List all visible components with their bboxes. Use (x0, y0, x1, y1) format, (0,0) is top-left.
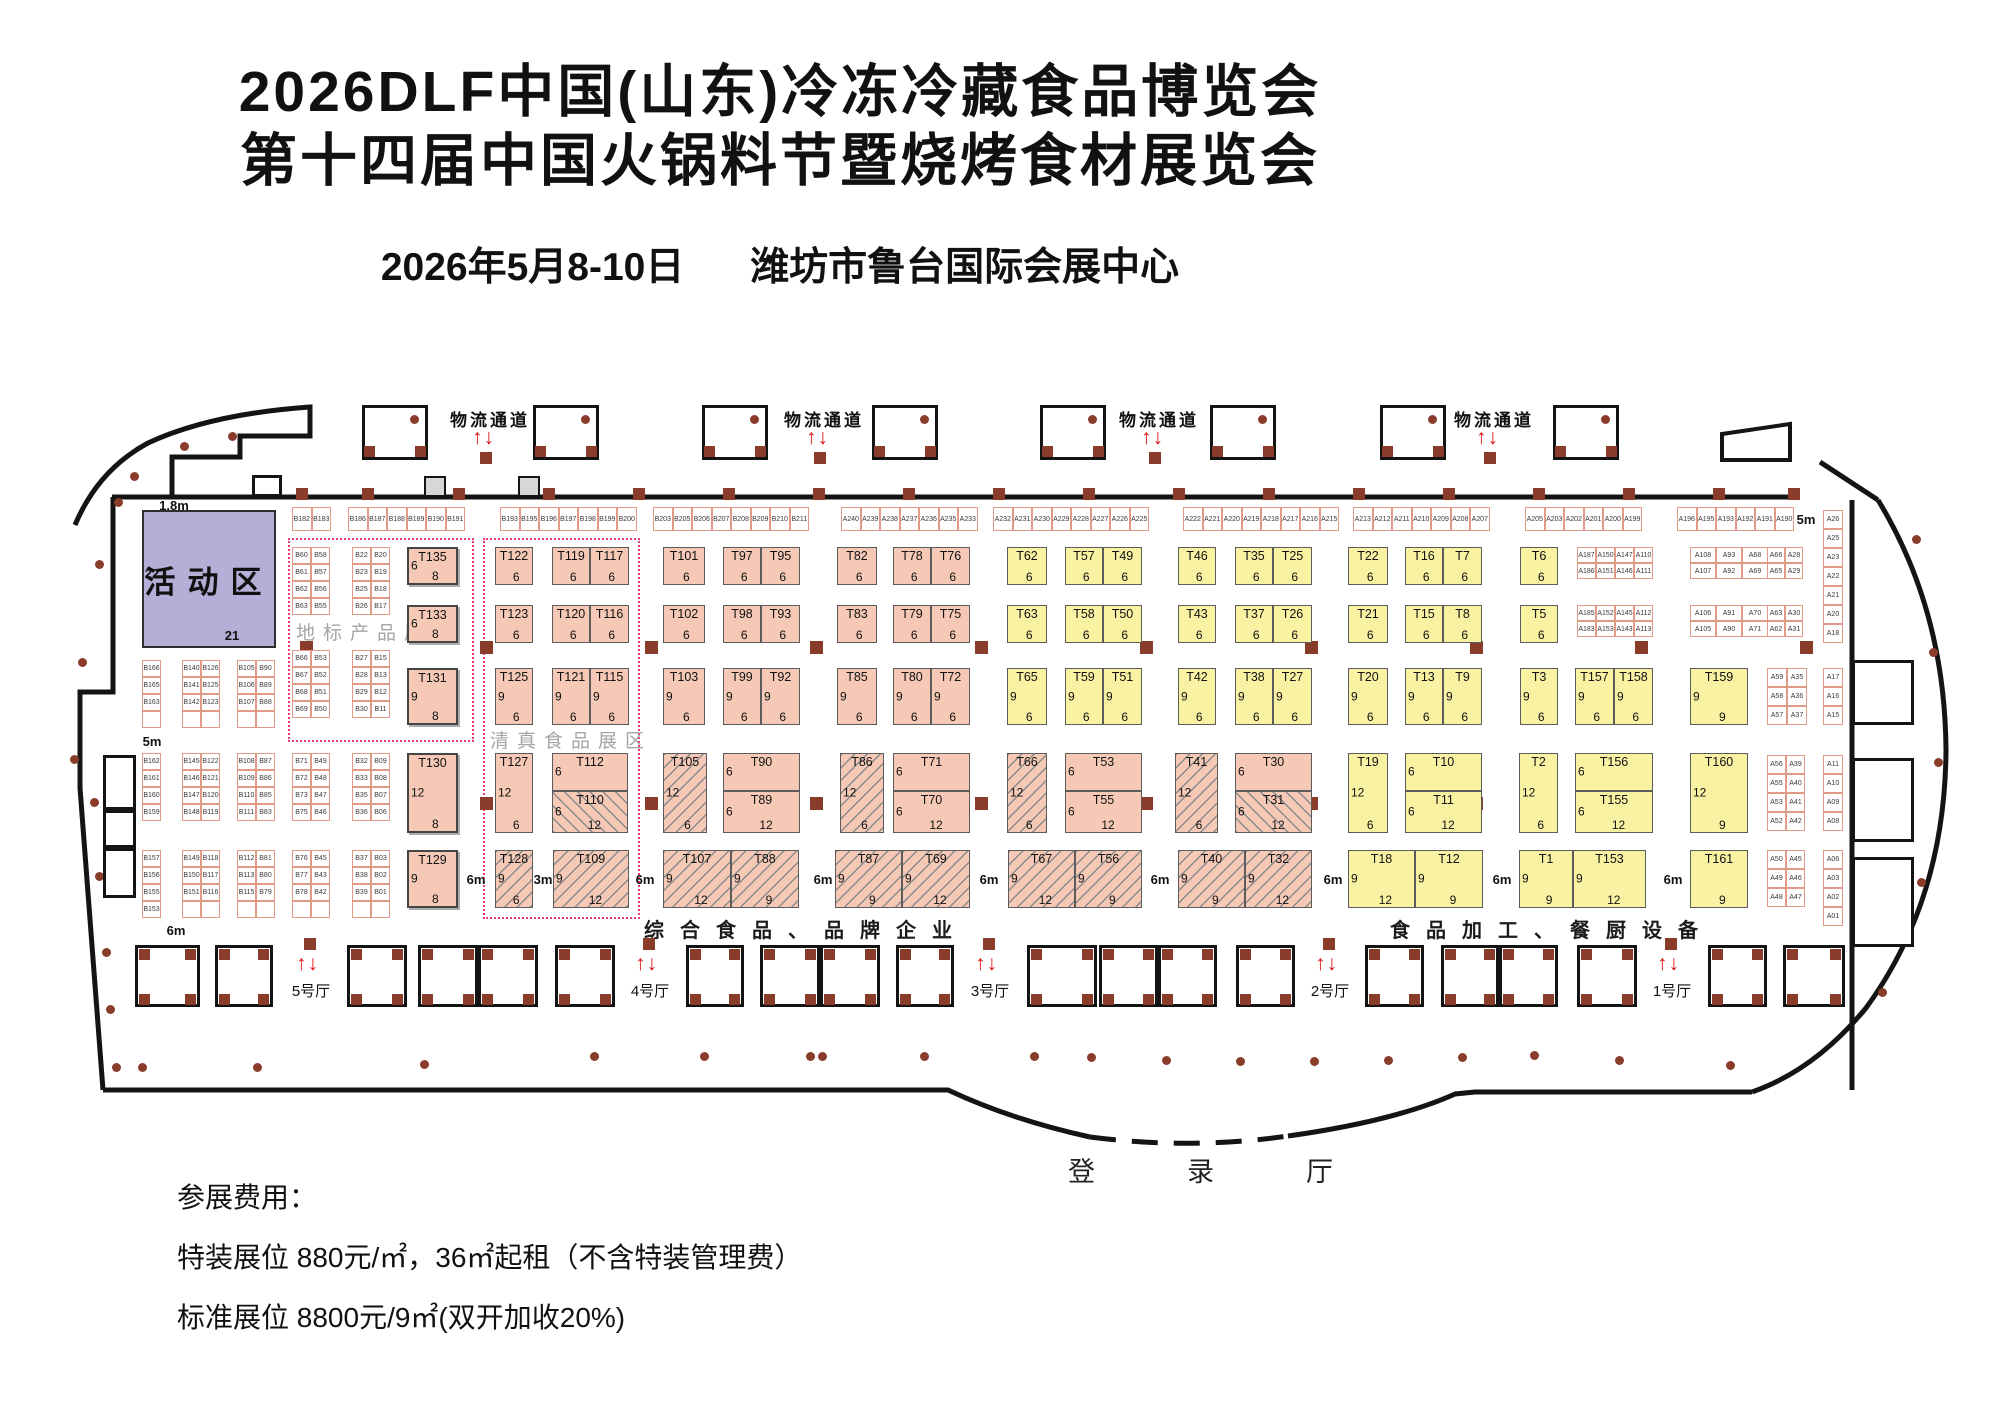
booth-bottom-size: 12 (694, 893, 707, 907)
column-marker (645, 797, 658, 810)
column-marker (1280, 949, 1291, 960)
booth-bottom-size: 9 (1212, 893, 1219, 907)
booth-side-size: 6 (555, 765, 562, 779)
booth-B110: B110 (237, 787, 256, 804)
column-dot (138, 1063, 147, 1072)
side-room (1852, 660, 1914, 725)
booth-A185: A185 (1577, 605, 1596, 621)
booth-B160: B160 (142, 787, 161, 804)
strip-booth-A26: A26 (1823, 510, 1843, 529)
booth-id: T76 (932, 549, 969, 563)
booth-A183: A183 (1577, 621, 1596, 637)
booth-T57: T576 (1065, 547, 1103, 585)
column-marker (1533, 488, 1545, 500)
column-marker (755, 446, 766, 457)
column-marker (1263, 488, 1275, 500)
column-dot (1726, 1061, 1735, 1070)
booth-B107: B107 (237, 694, 256, 711)
column-marker (1503, 994, 1514, 1005)
dimension-label: 6m (1493, 872, 1512, 887)
strip-booth-B211: B211 (790, 507, 810, 531)
booth-B15: B15 (371, 650, 390, 667)
column-dot (1912, 535, 1921, 544)
booth-B117: B117 (201, 867, 220, 884)
booth-T30: T306 (1235, 753, 1312, 791)
strip-booth-A213: A213 (1353, 507, 1373, 531)
booth-T46: T466 (1178, 547, 1216, 585)
booth-B118: B118 (201, 850, 220, 867)
column-marker (219, 949, 230, 960)
booth-A92: A92 (1716, 563, 1742, 579)
strip-booth-A192: A192 (1736, 507, 1756, 531)
booth-id: T11 (1406, 793, 1481, 807)
strip-booth-A225: A225 (1130, 507, 1150, 531)
booth-B19: B19 (371, 564, 390, 581)
booth-empty (182, 901, 201, 918)
column-marker (729, 949, 740, 960)
column-marker (805, 994, 816, 1005)
booth-B157: B157 (142, 850, 161, 867)
strip-booth-A207: A207 (1470, 507, 1490, 531)
booth-B116: B116 (201, 884, 220, 901)
booth-bottom-size: 8 (432, 709, 439, 723)
column-marker (1665, 938, 1677, 950)
booth-id: T30 (1236, 755, 1311, 769)
booth-B13: B13 (371, 667, 390, 684)
booth-id: T79 (894, 607, 930, 621)
column-marker (1143, 949, 1154, 960)
booth-T1: T199 (1519, 850, 1573, 908)
booth-side-size: 6 (1238, 765, 1245, 779)
booth-side-size: 9 (1351, 872, 1358, 886)
booth-side-size: 9 (1181, 689, 1188, 703)
strip-booth-B207: B207 (712, 507, 732, 531)
strip-booth-A203: A203 (1545, 507, 1565, 531)
strip-booth-B198: B198 (578, 507, 598, 531)
strip-booth-A08: A08 (1823, 812, 1843, 831)
booth-bottom-size: 6 (949, 710, 956, 724)
column-marker (1623, 488, 1635, 500)
booth-side-size: 9 (840, 689, 847, 703)
strip-booth-A228: A228 (1071, 507, 1091, 531)
booth-A150: A150 (1596, 547, 1615, 563)
booth-T55: T55612 (1065, 791, 1142, 833)
column-dot (410, 415, 419, 424)
column-marker (258, 949, 269, 960)
booth-T157: T15796 (1575, 668, 1614, 725)
column-dot (1929, 648, 1938, 657)
booth-id: T26 (1274, 607, 1311, 621)
dimension-label: 6m (1151, 872, 1170, 887)
column-marker (1103, 949, 1114, 960)
column-dot (750, 415, 759, 424)
booth-T13: T1396 (1405, 668, 1443, 725)
booth-id: T56 (1076, 852, 1141, 866)
booth-A62: A62 (1767, 621, 1785, 637)
booth-T53: T536 (1065, 753, 1142, 791)
column-marker (1263, 446, 1274, 457)
booth-side-size: 6 (1068, 805, 1075, 819)
booth-id: T123 (496, 607, 532, 621)
booth-B156: B156 (142, 867, 161, 884)
column-dot (180, 442, 189, 451)
booth-bottom-size: 6 (856, 628, 863, 642)
booth-empty (142, 711, 161, 728)
booth-T41: T41126 (1175, 753, 1218, 833)
booth-B51: B51 (311, 684, 330, 701)
booth-bottom-size: 6 (1121, 710, 1128, 724)
column-marker (1606, 446, 1617, 457)
booth-T12: T1299 (1415, 850, 1483, 908)
comprehensive-zone-label: 综合食品、品牌企业 (644, 914, 968, 943)
booth-id: T21 (1349, 607, 1387, 621)
booth-side-size: 9 (593, 689, 600, 703)
booth-B35: B35 (352, 787, 371, 804)
dimension-label: 5m (143, 734, 162, 749)
column-marker (480, 452, 492, 464)
strip-booth-A23: A23 (1823, 548, 1843, 567)
booth-id: T13 (1406, 670, 1442, 684)
booth-empty (237, 901, 256, 918)
booth-bottom-size: 6 (683, 628, 690, 642)
booth-B151: B151 (182, 884, 201, 901)
booth-id: T66 (1008, 755, 1046, 769)
side-room (1852, 857, 1914, 947)
hall-arrows: ↑↓ (635, 952, 658, 976)
booth-T43: T436 (1178, 605, 1216, 643)
booth-id: T1 (1520, 852, 1572, 866)
booth-bottom-size: 12 (1276, 893, 1289, 907)
column-marker (925, 446, 936, 457)
booth-bottom-size: 6 (1632, 710, 1639, 724)
strip-booth-B210: B210 (770, 507, 790, 531)
booth-B159: B159 (142, 804, 161, 821)
column-dot (78, 658, 87, 667)
strip-booth-B190: B190 (426, 507, 446, 531)
column-dot (70, 755, 79, 764)
booth-A143: A143 (1615, 621, 1634, 637)
booth-B150: B150 (182, 867, 201, 884)
column-marker (415, 446, 426, 457)
strip-booth-B209: B209 (751, 507, 771, 531)
booth-T79: T796 (893, 605, 931, 643)
column-dot (1162, 1056, 1171, 1065)
column-marker (1031, 994, 1042, 1005)
column-marker (463, 994, 474, 1005)
booth-bottom-size: 6 (1423, 570, 1430, 584)
booth-id: T158 (1615, 670, 1652, 684)
booth-bottom-size: 12 (933, 893, 946, 907)
booth-T103: T10396 (663, 668, 705, 725)
booth-B37: B37 (352, 850, 371, 867)
strip-booth-A11: A11 (1823, 755, 1843, 774)
booth-B03: B03 (371, 850, 390, 867)
booth-T80: T8096 (893, 668, 931, 725)
booth-bottom-size: 8 (432, 892, 439, 906)
booth-A107: A107 (1690, 563, 1716, 579)
column-marker (975, 797, 988, 810)
strip-booth-A212: A212 (1373, 507, 1393, 531)
booth-T87: T8799 (835, 850, 902, 908)
booth-id: T99 (724, 670, 760, 684)
column-marker (1082, 949, 1093, 960)
booth-id: T153 (1574, 852, 1645, 866)
column-marker (1484, 452, 1496, 464)
column-marker (1555, 446, 1566, 457)
strip-booth-A236: A236 (919, 507, 939, 531)
booth-A47: A47 (1786, 888, 1805, 907)
booth-id: T62 (1008, 549, 1046, 563)
booth-bottom-size: 6 (1367, 818, 1374, 832)
booth-A31: A31 (1785, 621, 1803, 637)
strip-booth-A220: A220 (1222, 507, 1242, 531)
booth-bottom-size: 6 (1538, 628, 1545, 642)
booth-B68: B68 (292, 684, 311, 701)
column-marker (1712, 994, 1723, 1005)
booth-empty (182, 711, 201, 728)
booth-T97: T976 (723, 547, 761, 585)
column-dot (102, 948, 111, 957)
booth-bottom-size: 6 (1253, 710, 1260, 724)
column-marker (351, 949, 362, 960)
strip-booth-A21: A21 (1823, 586, 1843, 605)
booth-B30: B30 (352, 701, 371, 718)
booth-T63: T636 (1007, 605, 1047, 643)
booth-side-size: 9 (1617, 689, 1624, 703)
booth-T125: T12596 (495, 668, 533, 725)
booth-A110: A110 (1634, 547, 1653, 563)
column-marker (690, 949, 701, 960)
booth-B122: B122 (201, 753, 220, 770)
booth-A113: A113 (1634, 621, 1653, 637)
booth-bottom-size: 6 (1083, 570, 1090, 584)
booth-T31: T31612 (1235, 791, 1312, 833)
column-dot (1236, 1057, 1245, 1066)
booth-side-size: 12 (1351, 786, 1364, 800)
booth-bottom-size: 6 (1253, 628, 1260, 642)
booth-B75: B75 (292, 804, 311, 821)
booth-bottom-size: 12 (1101, 818, 1114, 832)
booth-side-size: 6 (896, 805, 903, 819)
booth-empty (201, 711, 220, 728)
booth-A186: A186 (1577, 563, 1596, 579)
dimension-label: 6m (1324, 872, 1343, 887)
booth-side-size: 9 (838, 872, 845, 886)
booth-side-size: 9 (1576, 872, 1583, 886)
booth-id: T43 (1179, 607, 1215, 621)
booth-side-size: 9 (1106, 689, 1113, 703)
booth-T133: T13368 (407, 605, 458, 643)
booth-T25: T256 (1273, 547, 1312, 585)
booth-id: T9 (1444, 670, 1481, 684)
strip-booth-A216: A216 (1300, 507, 1320, 531)
booth-id: T131 (409, 671, 456, 685)
booth-id: T120 (553, 607, 589, 621)
booth-id: T15 (1406, 607, 1442, 621)
booth-bottom-size: 6 (1461, 628, 1468, 642)
booth-side-size: 9 (666, 689, 673, 703)
booth-side-size: 12 (411, 786, 424, 800)
booth-id: T46 (1179, 549, 1215, 563)
column-dot (228, 432, 237, 441)
strip-booth-B191: B191 (446, 507, 466, 531)
booth-id: T51 (1104, 670, 1141, 684)
dimension-label: 6m (814, 872, 833, 887)
column-dot (1615, 1056, 1624, 1065)
booth-B61: B61 (292, 564, 311, 581)
booth-T88: T8899 (731, 850, 799, 908)
column-marker (1752, 994, 1763, 1005)
booth-bottom-size: 6 (570, 710, 577, 724)
booth-B80: B80 (256, 867, 275, 884)
column-marker (690, 994, 701, 1005)
booth-side-size: 12 (1010, 786, 1023, 800)
booth-side-size: 6 (1408, 765, 1415, 779)
booth-T121: T12196 (552, 668, 590, 725)
booth-bottom-size: 6 (1537, 818, 1544, 832)
booth-id: T127 (496, 755, 532, 769)
booth-side-size: 9 (498, 689, 505, 703)
booth-A50: A50 (1767, 850, 1786, 869)
side-room (103, 755, 136, 810)
booth-bottom-size: 6 (1367, 628, 1374, 642)
booth-id: T69 (903, 852, 969, 866)
column-marker (296, 488, 308, 500)
booth-A91: A91 (1716, 605, 1742, 621)
booth-id: T103 (664, 670, 704, 684)
column-marker (1581, 994, 1592, 1005)
column-dot (1878, 988, 1887, 997)
booth-empty (256, 711, 275, 728)
hall-label: 3号厅 (971, 980, 1009, 1001)
booth-bottom-size: 9 (1719, 818, 1726, 832)
booth-T50: T506 (1103, 605, 1142, 643)
booth-B119: B119 (201, 804, 220, 821)
booth-bottom-size: 6 (1026, 628, 1033, 642)
booth-B111: B111 (237, 804, 256, 821)
booth-B25: B25 (352, 581, 371, 598)
booth-empty (256, 901, 275, 918)
booth-T42: T4296 (1178, 668, 1216, 725)
strip-booth-B196: B196 (539, 507, 559, 531)
column-marker (523, 949, 534, 960)
strip-booth-A16: A16 (1823, 687, 1843, 706)
column-marker (139, 994, 150, 1005)
booth-T58: T586 (1065, 605, 1103, 643)
booth-id: T92 (762, 670, 799, 684)
column-marker (814, 452, 826, 464)
booth-id: T19 (1349, 755, 1387, 769)
booth-side-size: 6 (1578, 805, 1585, 819)
column-marker (1445, 994, 1456, 1005)
booth-B47: B47 (311, 787, 330, 804)
booth-side-size: 9 (411, 872, 418, 886)
booth-B18: B18 (371, 581, 390, 598)
booth-id: T102 (664, 607, 704, 621)
booth-A146: A146 (1615, 563, 1634, 579)
strip-booth-A217: A217 (1281, 507, 1301, 531)
booth-id: T49 (1104, 549, 1141, 563)
booth-bottom-size: 6 (911, 710, 918, 724)
booth-B02: B02 (371, 867, 390, 884)
booth-A45: A45 (1786, 850, 1805, 869)
column-marker (900, 949, 911, 960)
booth-A46: A46 (1786, 869, 1805, 888)
column-marker (1143, 994, 1154, 1005)
column-marker (813, 488, 825, 500)
booth-id: T109 (554, 852, 628, 866)
booth-A145: A145 (1615, 605, 1634, 621)
booth-id: T3 (1521, 670, 1557, 684)
booth-id: T129 (409, 853, 456, 867)
booth-A70: A70 (1742, 605, 1768, 621)
booth-A52: A52 (1767, 812, 1786, 831)
column-marker (805, 949, 816, 960)
booth-bottom-size: 6 (1083, 710, 1090, 724)
booth-B50: B50 (311, 701, 330, 718)
booth-side-size: 12 (1178, 786, 1191, 800)
column-marker (392, 994, 403, 1005)
booth-B148: B148 (182, 804, 201, 821)
column-marker (1752, 949, 1763, 960)
strip-booth-A25: A25 (1823, 529, 1843, 548)
booth-T127: T127126 (495, 753, 533, 833)
booth-T2: T2126 (1519, 753, 1558, 833)
column-dot (1384, 1056, 1393, 1065)
strip-booth-A03: A03 (1823, 869, 1843, 888)
column-marker (463, 949, 474, 960)
booth-B23: B23 (352, 564, 371, 581)
booth-T156: T1566 (1575, 753, 1653, 791)
column-marker (939, 949, 950, 960)
booth-T26: T266 (1273, 605, 1312, 643)
strip-booth-A210: A210 (1412, 507, 1432, 531)
column-marker (1445, 949, 1456, 960)
booth-B26: B26 (352, 598, 371, 615)
booth-id: T107 (664, 852, 730, 866)
column-dot (112, 1063, 121, 1072)
booth-B146: B146 (182, 770, 201, 787)
booth-id: T121 (553, 670, 589, 684)
strip-booth-A226: A226 (1110, 507, 1130, 531)
booth-T40: T4099 (1178, 850, 1245, 908)
booth-bottom-size: 6 (1593, 710, 1600, 724)
column-marker (422, 994, 433, 1005)
column-dot (114, 498, 123, 507)
booth-id: T53 (1066, 755, 1141, 769)
booth-bottom-size: 6 (1423, 710, 1430, 724)
column-marker (1830, 949, 1841, 960)
booth-side-size: 9 (1011, 872, 1018, 886)
booth-bottom-size: 6 (779, 628, 786, 642)
strip-booth-A238: A238 (880, 507, 900, 531)
booth-id: T117 (591, 549, 628, 563)
column-marker (1409, 994, 1420, 1005)
booth-id: T160 (1691, 755, 1747, 769)
booth-B09: B09 (371, 753, 390, 770)
booth-empty (371, 901, 390, 918)
booth-side-size: 9 (1408, 689, 1415, 703)
booth-id: T78 (894, 549, 930, 563)
booth-bottom-size: 9 (1450, 893, 1457, 907)
booth-id: T67 (1009, 852, 1074, 866)
column-marker (1409, 949, 1420, 960)
booth-id: T86 (841, 755, 883, 769)
column-marker (185, 949, 196, 960)
booth-id: T155 (1576, 793, 1652, 807)
booth-side-size: 9 (1276, 689, 1283, 703)
booth-side-size: 9 (1181, 872, 1188, 886)
